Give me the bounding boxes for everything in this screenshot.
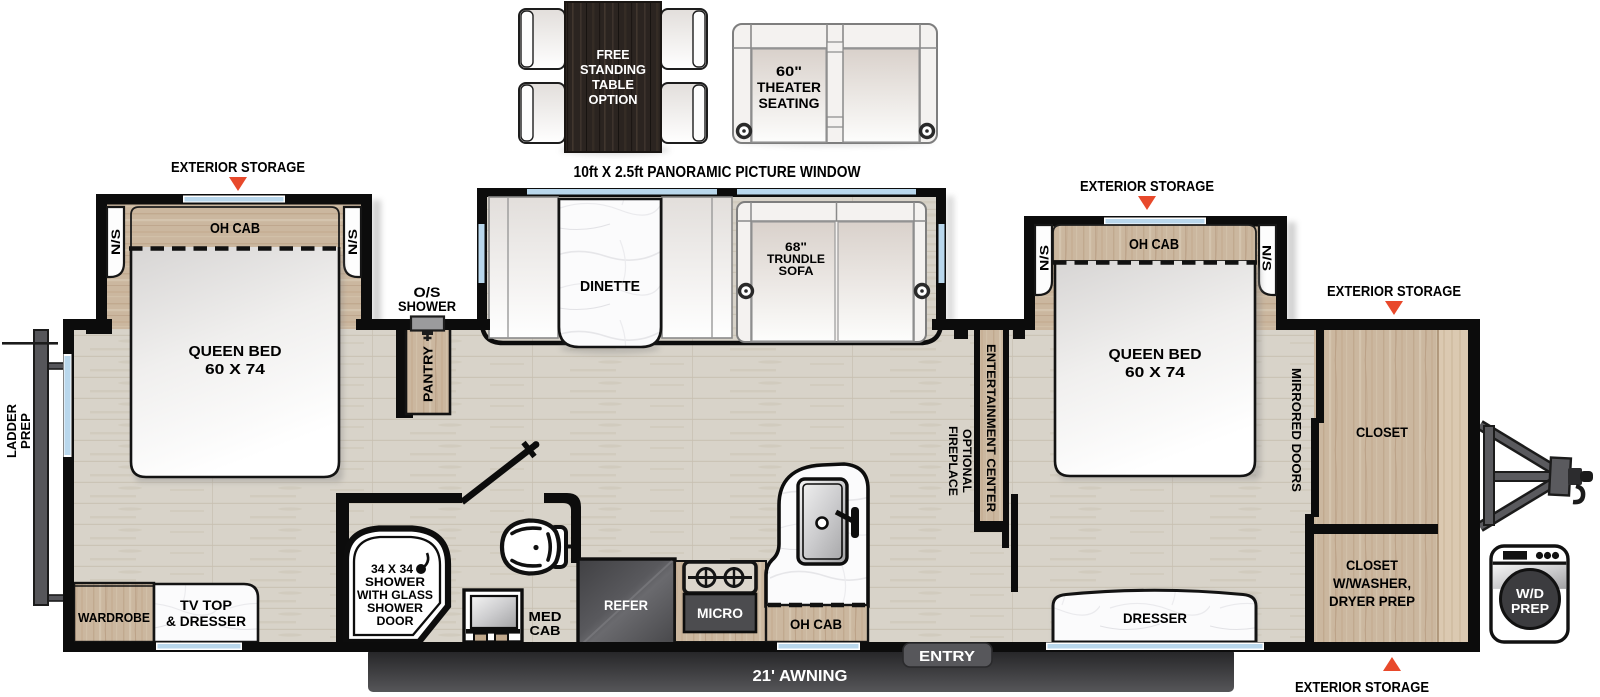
svg-text:FREE: FREE [597, 47, 630, 62]
svg-text:EXTERIOR STORAGE: EXTERIOR STORAGE [1080, 178, 1214, 195]
svg-text:W/D: W/D [1516, 586, 1544, 601]
svg-text:MED: MED [529, 610, 562, 624]
svg-text:FIREPLACE: FIREPLACE [946, 426, 960, 496]
svg-text:CLOSET: CLOSET [1346, 558, 1399, 573]
svg-text:REFER: REFER [604, 597, 648, 613]
svg-text:OH CAB: OH CAB [790, 616, 842, 632]
svg-text:N/S: N/S [1040, 245, 1052, 271]
svg-text:TV TOP: TV TOP [180, 598, 232, 613]
svg-text:PANTRY: PANTRY [421, 346, 436, 402]
svg-text:DRESSER: DRESSER [1123, 610, 1187, 626]
svg-text:OPTIONAL: OPTIONAL [960, 429, 974, 493]
svg-text:STANDING: STANDING [580, 62, 646, 77]
svg-text:TRUNDLE: TRUNDLE [767, 254, 825, 266]
svg-text:TABLE: TABLE [592, 77, 634, 92]
svg-text:WITH GLASS: WITH GLASS [357, 588, 433, 602]
svg-text:SHOWER: SHOWER [365, 575, 425, 589]
svg-text:W/WASHER,: W/WASHER, [1333, 576, 1411, 591]
svg-text:QUEEN BED: QUEEN BED [189, 344, 282, 360]
svg-text:EXTERIOR STORAGE: EXTERIOR STORAGE [171, 159, 305, 176]
svg-text:LADDER: LADDER [5, 404, 19, 458]
svg-text:O/S: O/S [414, 285, 441, 300]
svg-text:EXTERIOR STORAGE: EXTERIOR STORAGE [1295, 679, 1429, 696]
svg-text:OH CAB: OH CAB [1129, 236, 1179, 253]
svg-text:N/S: N/S [1260, 245, 1272, 271]
svg-text:68": 68" [785, 242, 807, 254]
svg-text:MICRO: MICRO [697, 606, 743, 621]
svg-text:& DRESSER: & DRESSER [166, 614, 246, 629]
svg-text:OH CAB: OH CAB [210, 220, 260, 237]
svg-text:CLOSET: CLOSET [1356, 424, 1408, 440]
svg-text:WARDROBE: WARDROBE [78, 610, 150, 625]
svg-text:N/S: N/S [111, 229, 123, 255]
svg-text:21' AWNING: 21' AWNING [753, 668, 848, 685]
svg-text:N/S: N/S [348, 229, 360, 255]
svg-text:SHOWER: SHOWER [367, 601, 423, 615]
svg-text:DINETTE: DINETTE [580, 278, 640, 295]
svg-text:ENTRY: ENTRY [919, 648, 975, 665]
svg-text:DRYER PREP: DRYER PREP [1329, 594, 1415, 609]
svg-text:SOFA: SOFA [779, 266, 814, 278]
svg-text:10ft X 2.5ft PANORAMIC PICTURE: 10ft X 2.5ft PANORAMIC PICTURE WINDOW [574, 164, 861, 181]
svg-text:ENTERTAINMENT CENTER: ENTERTAINMENT CENTER [984, 344, 998, 512]
svg-text:60": 60" [776, 63, 802, 79]
svg-text:OPTION: OPTION [589, 92, 638, 107]
svg-text:THEATER: THEATER [757, 79, 821, 95]
svg-text:SHOWER: SHOWER [398, 299, 456, 314]
svg-text:EXTERIOR STORAGE: EXTERIOR STORAGE [1327, 283, 1461, 300]
svg-text:PREP: PREP [1511, 601, 1549, 616]
svg-text:CAB: CAB [530, 624, 561, 638]
svg-text:60 X 74: 60 X 74 [1125, 365, 1185, 381]
svg-text:34 X 34: 34 X 34 [371, 562, 413, 576]
svg-text:SEATING: SEATING [759, 95, 820, 111]
svg-text:QUEEN BED: QUEEN BED [1109, 347, 1202, 363]
svg-text:PREP: PREP [19, 413, 33, 449]
svg-text:60 X 74: 60 X 74 [205, 362, 265, 378]
svg-text:MIRRORED DOORS: MIRRORED DOORS [1289, 368, 1303, 492]
svg-text:DOOR: DOOR [377, 614, 414, 628]
